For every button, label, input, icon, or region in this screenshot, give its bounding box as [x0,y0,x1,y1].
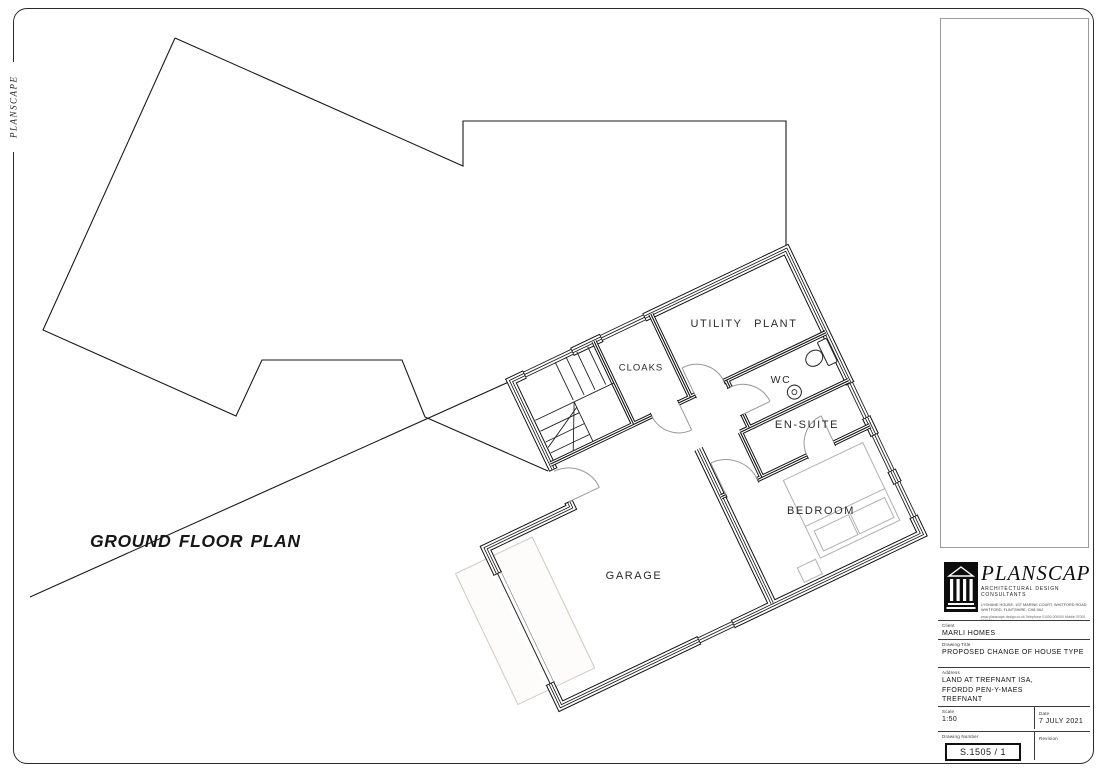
drawing-sheet: PLANSCAPE UTILITY PLANT CLOAKS WC EN-SUI… [0,0,1108,781]
address-line-3: TREFNANT [942,695,1090,705]
notes-box [940,18,1089,548]
job-value: PROPOSED CHANGE OF HOUSE TYPE [942,649,1084,656]
plan-title: GROUND FLOOR PLAN [90,531,301,552]
room-label-utility-plant: UTILITY PLANT [690,318,797,330]
brand-address-line2: WHITFORD, FLINTSHIRE, CH8 9AJ [981,608,1090,613]
brand-name: PLANSCAPE [981,562,1090,584]
room-label-bedroom: BEDROOM [787,505,855,517]
field-job: Drawing Title PROPOSED CHANGE OF HOUSE T… [938,639,1090,667]
planscape-logo-icon [944,562,978,612]
title-block-brand: PLANSCAPE ARCHITECTURAL DESIGN CONSULTAN… [938,556,1090,620]
room-label-wc: WC [771,374,792,386]
staircase [516,343,632,460]
field-scale-date: Scale 1:50 Date 7 JULY 2021 [938,706,1090,731]
door-swings [538,323,834,557]
brand-tagline: ARCHITECTURAL DESIGN CONSULTANTS [981,586,1090,598]
revision-label: Revision [1039,736,1090,742]
house-plan [389,242,930,727]
room-label-cloaks: CLOAKS [619,363,664,374]
date-value: 7 JULY 2021 [1039,718,1083,725]
job-label: Drawing Title [942,642,1090,648]
brand-address: LYSHANE HOUSE, 1ST MARINE COURT, WHITFOR… [981,603,1090,612]
address-line-2: FFORDD PEN-Y-MAES [942,686,1090,696]
brand-address-line1: LYSHANE HOUSE, 1ST MARINE COURT, WHITFOR… [981,603,1090,608]
field-number-revision: Drawing Number S.1505 / 1 Revision [938,731,1090,762]
site-boundary [30,38,786,597]
field-address: Address LAND AT TREFNANT ISA, FFORDD PEN… [938,667,1090,706]
field-client: Client MARLI HOMES [938,620,1090,639]
client-label: Client [942,623,1090,629]
client-value: MARLI HOMES [942,630,995,637]
drawing-number-label: Drawing Number [942,734,1034,740]
scale-value: 1:50 [942,716,957,723]
scale-label: Scale [942,709,1034,715]
title-block: PLANSCAPE ARCHITECTURAL DESIGN CONSULTAN… [938,556,1090,762]
side-brand-label: PLANSCAPE [5,62,22,152]
drawing-number-box: S.1505 / 1 [945,743,1021,761]
address-line-1: LAND AT TREFNANT ISA, [942,676,1090,686]
room-label-garage: GARAGE [606,570,663,582]
room-label-en-suite: EN-SUITE [775,419,839,431]
date-label: Date [1039,711,1090,717]
